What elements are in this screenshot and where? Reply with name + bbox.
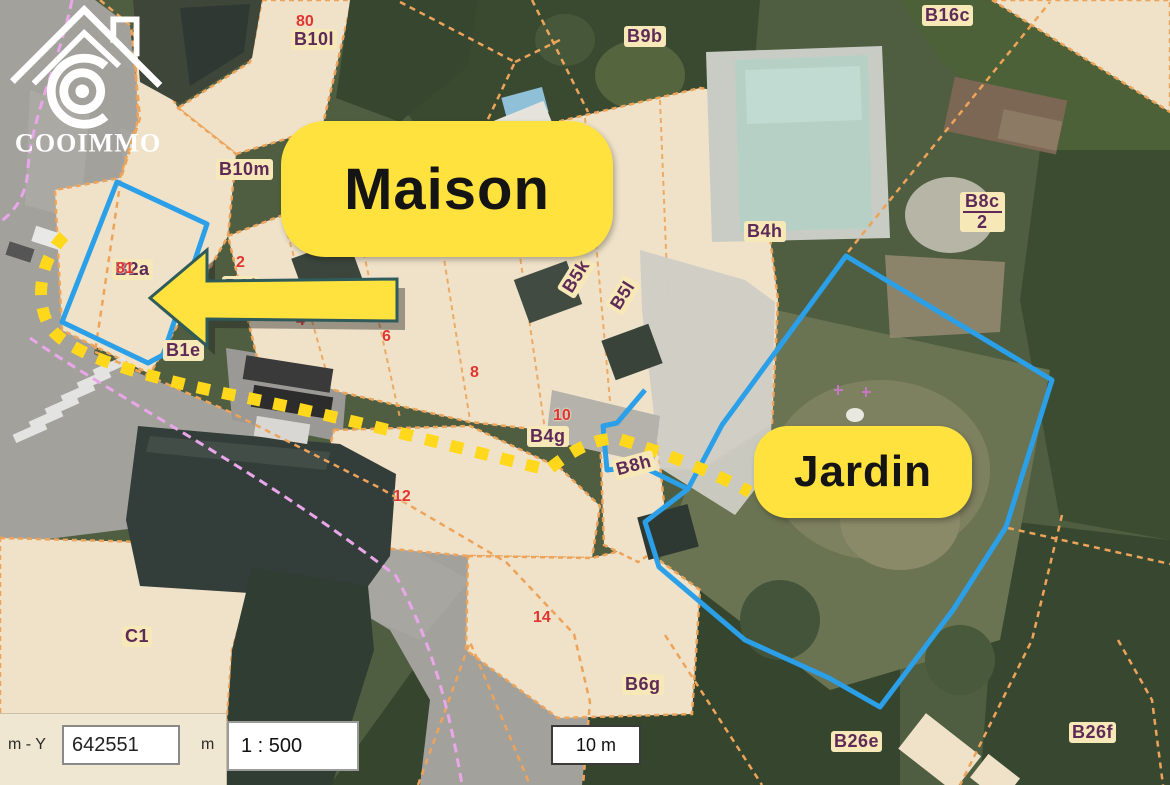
coord-unit-label: m [201,736,214,754]
cadastre-map-viewport[interactable]: B10l B10m B9b B16c B4h B5k B5l B1f B2a B… [0,0,1170,785]
ui-layer: m - Y m 1 : 500 10 m [0,0,1170,785]
scalebar: 10 m [551,725,641,765]
coord-input[interactable] [62,725,180,765]
coord-label: m - Y [8,736,46,754]
scale-display[interactable]: 1 : 500 [227,721,359,771]
